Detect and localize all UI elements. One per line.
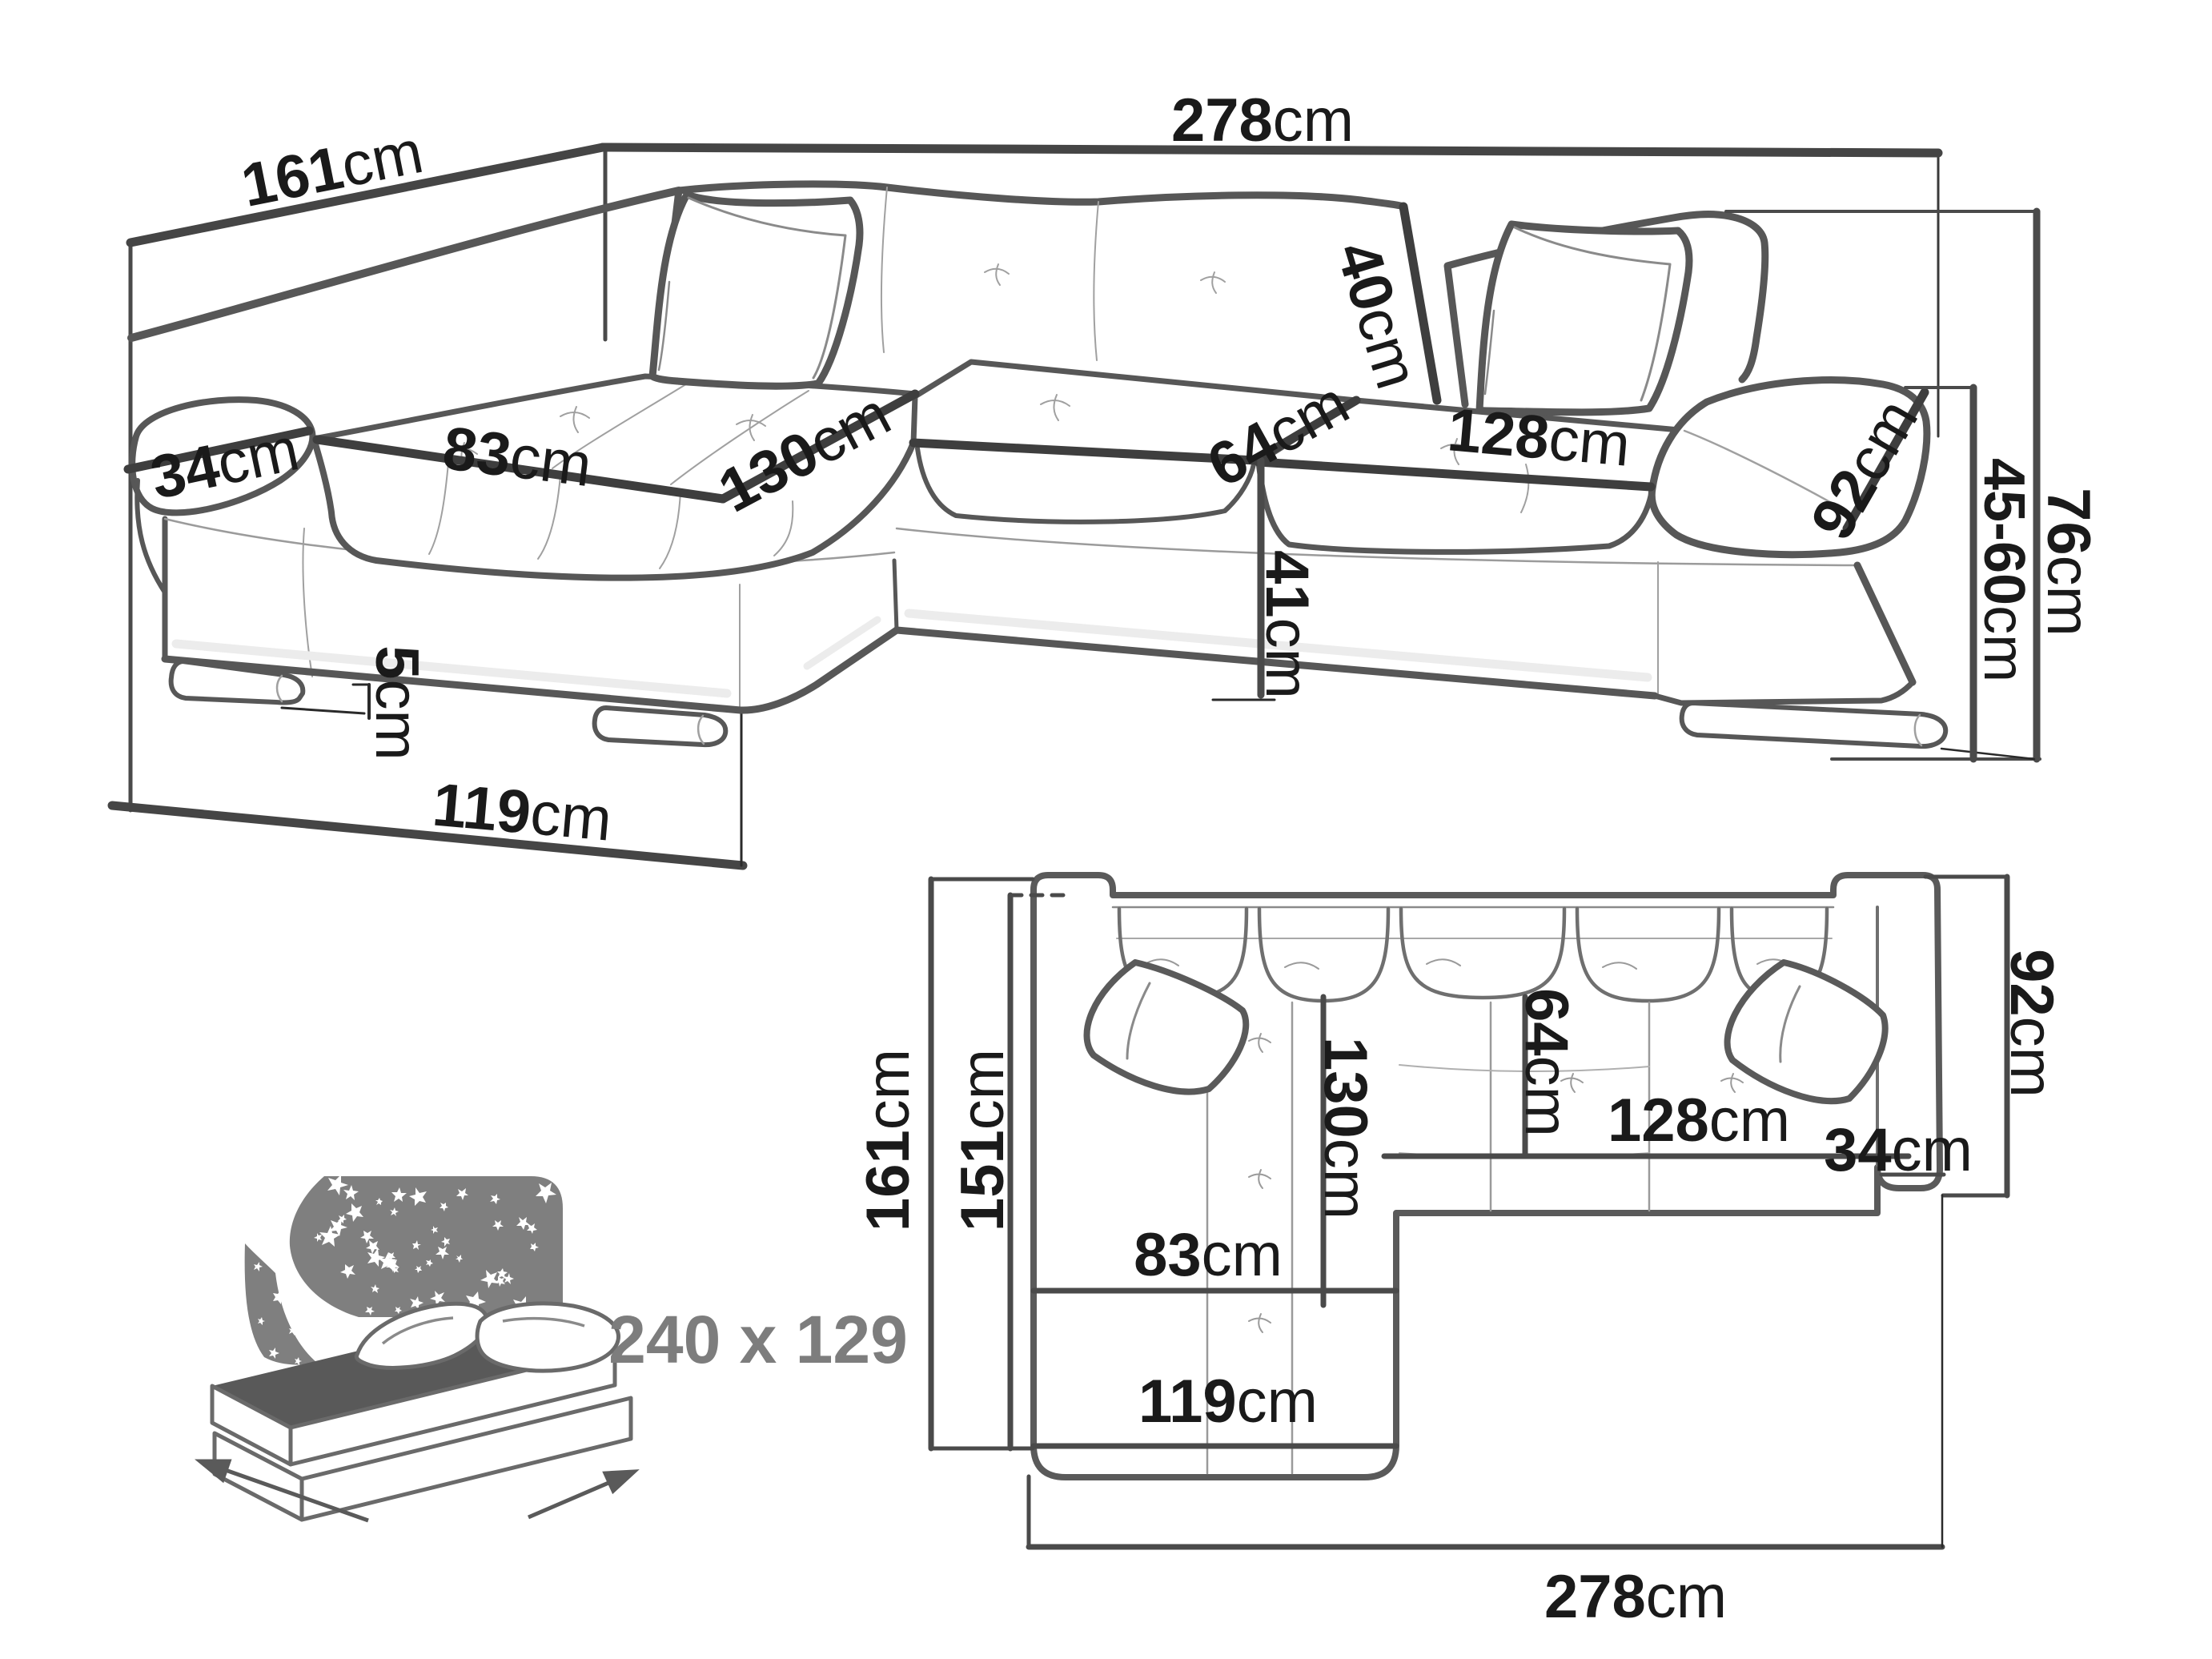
svg-text:161cm: 161cm <box>854 1049 922 1231</box>
svg-text:45-60cm: 45-60cm <box>1972 458 2036 682</box>
svg-text:92cm: 92cm <box>1997 949 2065 1098</box>
svg-text:41cm: 41cm <box>1253 550 1321 699</box>
svg-text:83cm: 83cm <box>1134 1221 1283 1289</box>
svg-text:64cm: 64cm <box>1512 988 1580 1137</box>
svg-text:34cm: 34cm <box>1824 1116 1973 1184</box>
svg-text:76cm: 76cm <box>2034 488 2102 637</box>
svg-text:119cm: 119cm <box>1138 1368 1318 1436</box>
svg-text:128cm: 128cm <box>1608 1087 1790 1155</box>
svg-text:240 x 129: 240 x 129 <box>608 1302 908 1377</box>
svg-text:278cm: 278cm <box>1544 1563 1727 1631</box>
svg-text:130cm: 130cm <box>1311 1037 1379 1219</box>
svg-text:151cm: 151cm <box>949 1049 1017 1231</box>
svg-text:278cm: 278cm <box>1171 86 1354 155</box>
svg-text:5cm: 5cm <box>363 645 431 761</box>
